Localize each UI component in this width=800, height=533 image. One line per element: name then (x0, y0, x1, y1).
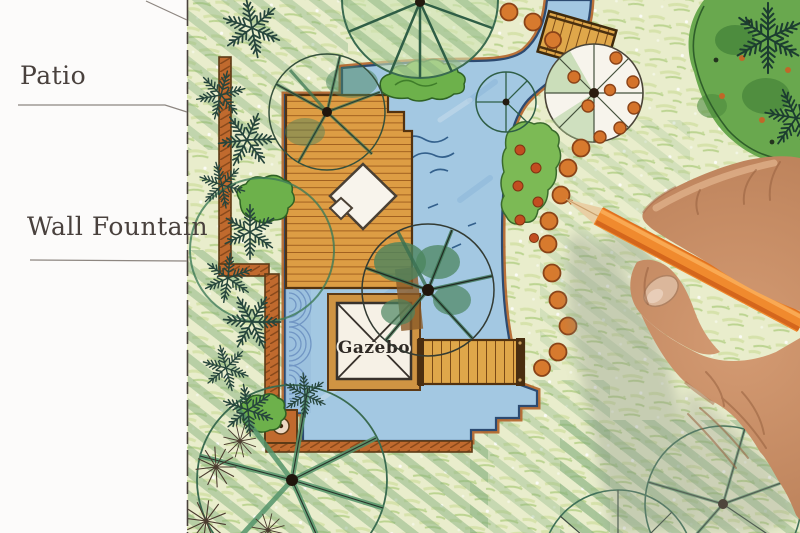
patio-label: Patio (20, 61, 86, 90)
margin-annotations: Patio Wall Fountain (0, 0, 208, 533)
plan-photo: Gazebo (0, 0, 800, 533)
wall-fountain-label: Wall Fountain (27, 212, 208, 241)
photo-canvas: Gazebo (0, 0, 800, 533)
boardwalk (418, 338, 525, 386)
tree-fruit (545, 44, 643, 143)
gazebo-label: Gazebo (338, 338, 410, 358)
